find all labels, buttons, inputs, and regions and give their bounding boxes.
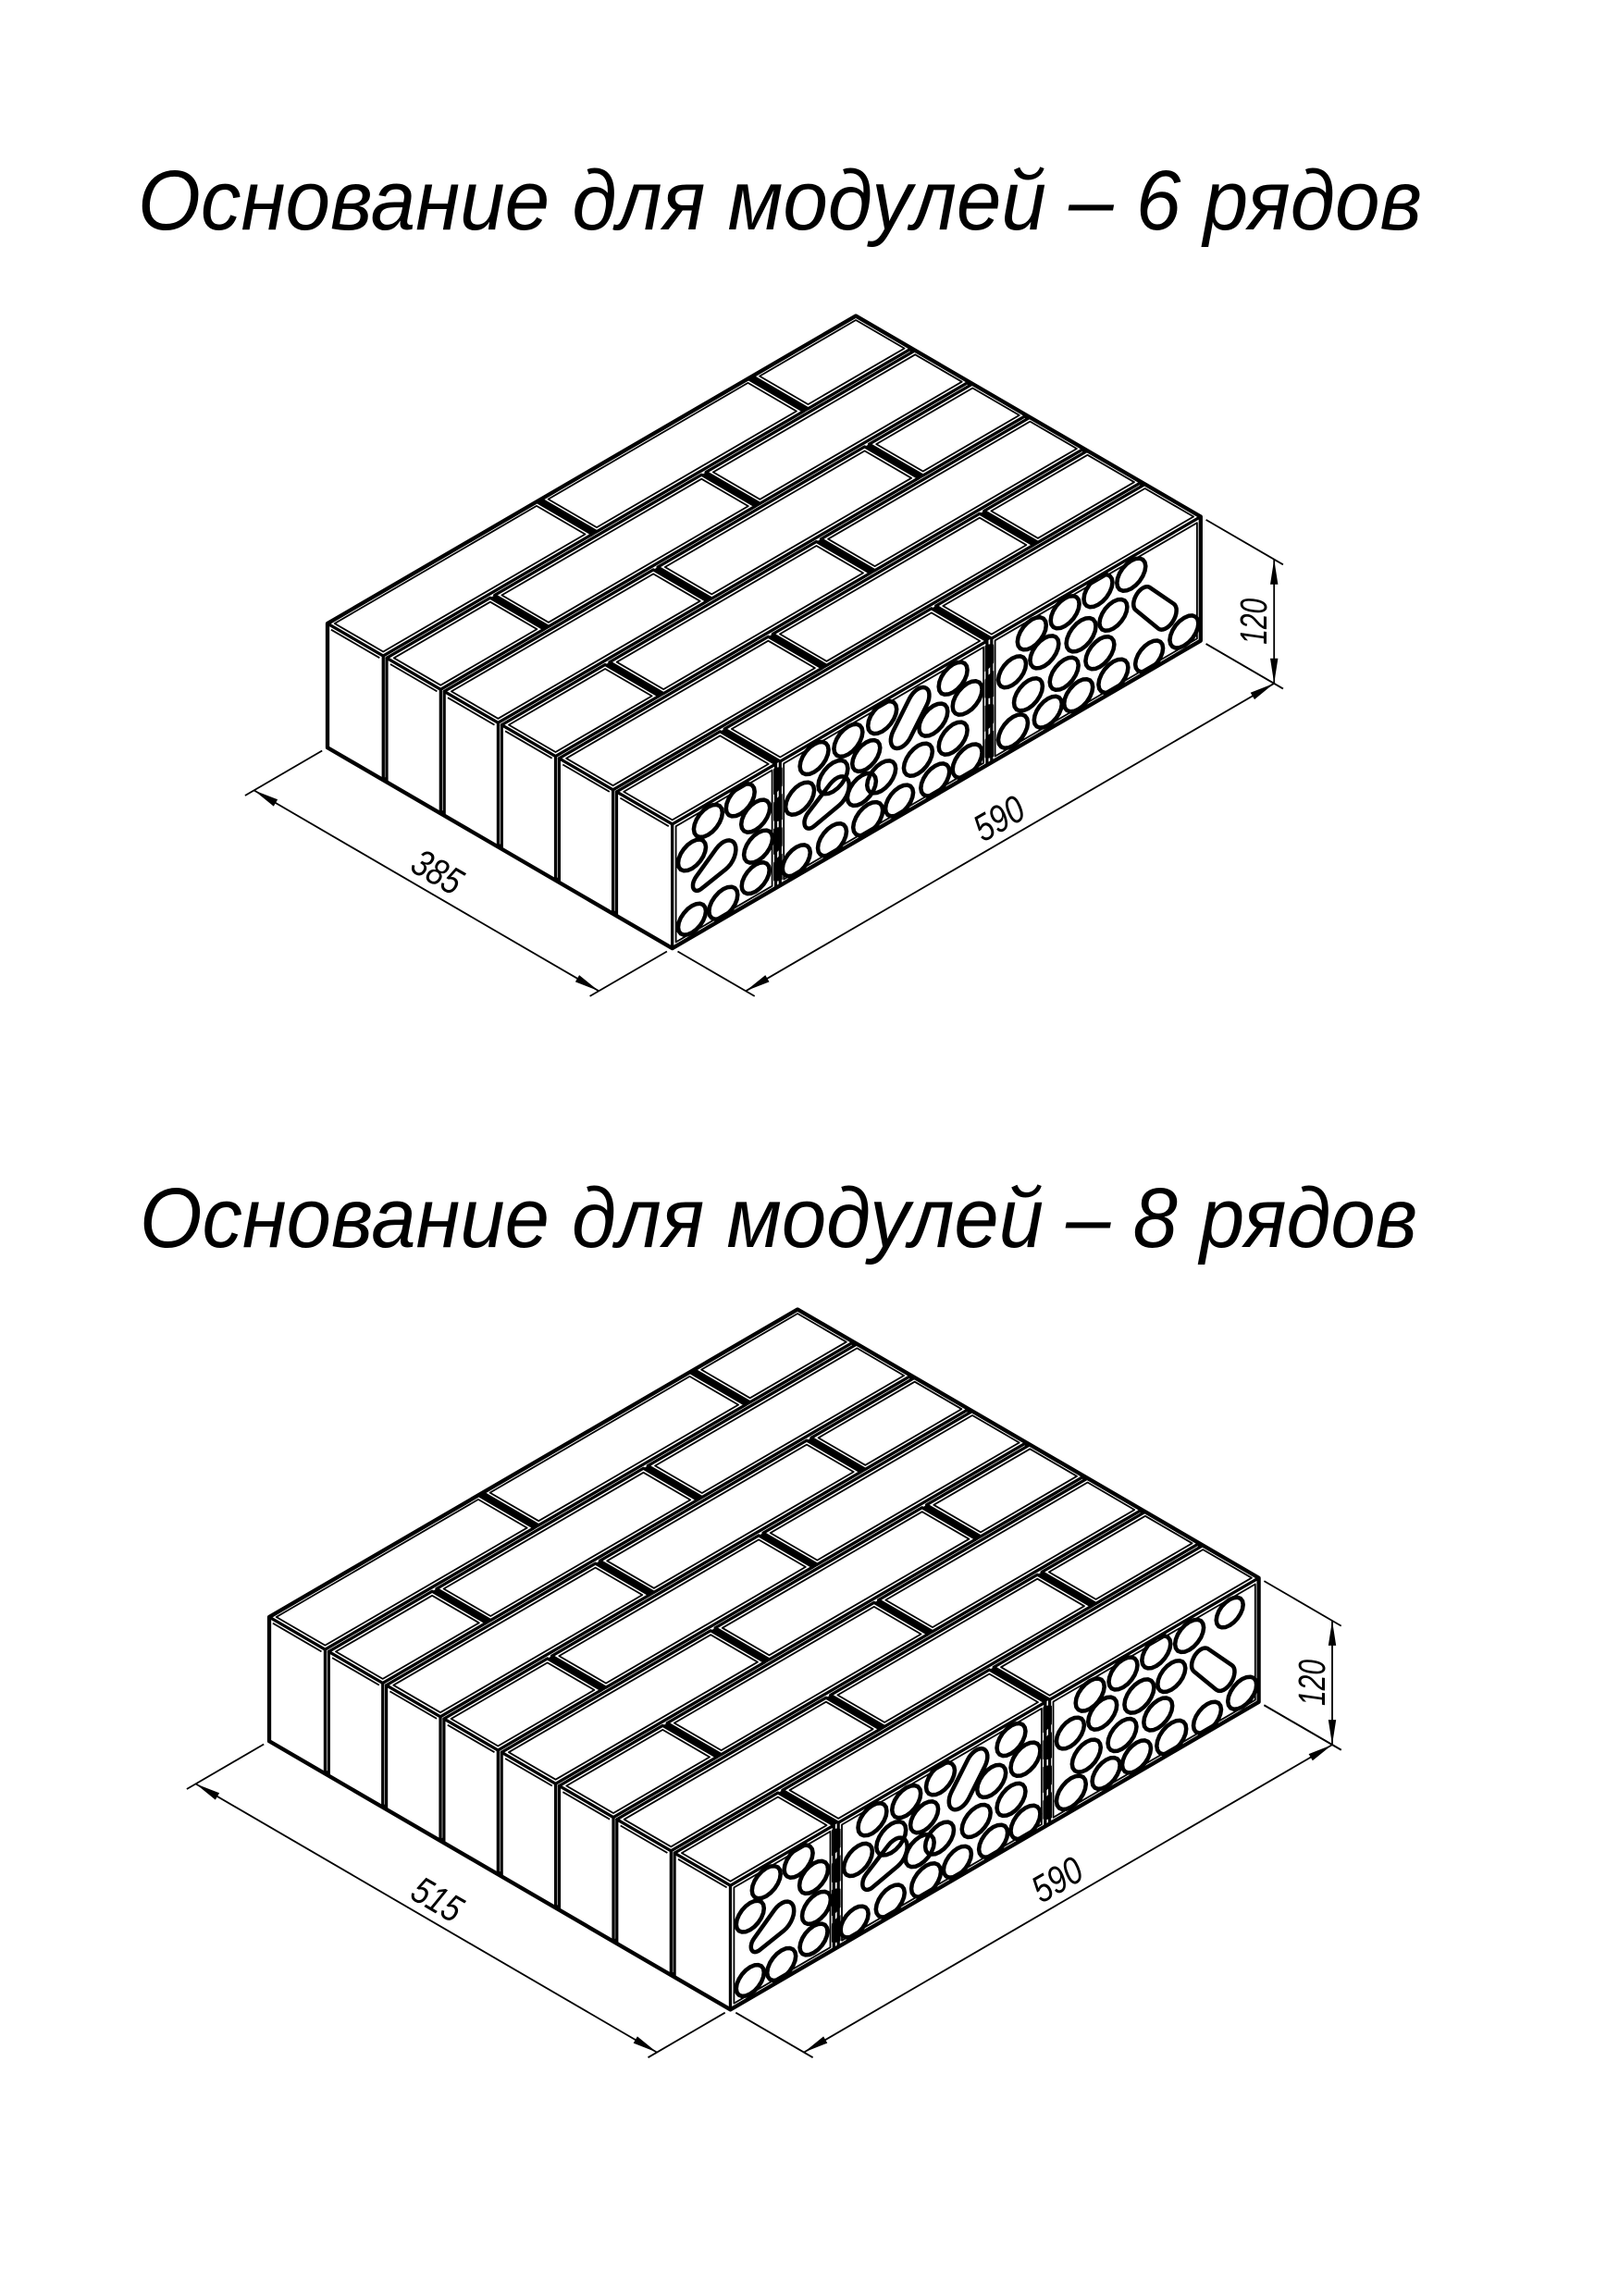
svg-text:Основание для модулей – 6 рядо: Основание для модулей – 6 рядов — [138, 154, 1422, 248]
svg-text:Основание для модулей – 8 рядо: Основание для модулей – 8 рядов — [140, 1171, 1417, 1265]
svg-text:120: 120 — [1291, 1660, 1333, 1706]
svg-text:120: 120 — [1232, 599, 1275, 645]
